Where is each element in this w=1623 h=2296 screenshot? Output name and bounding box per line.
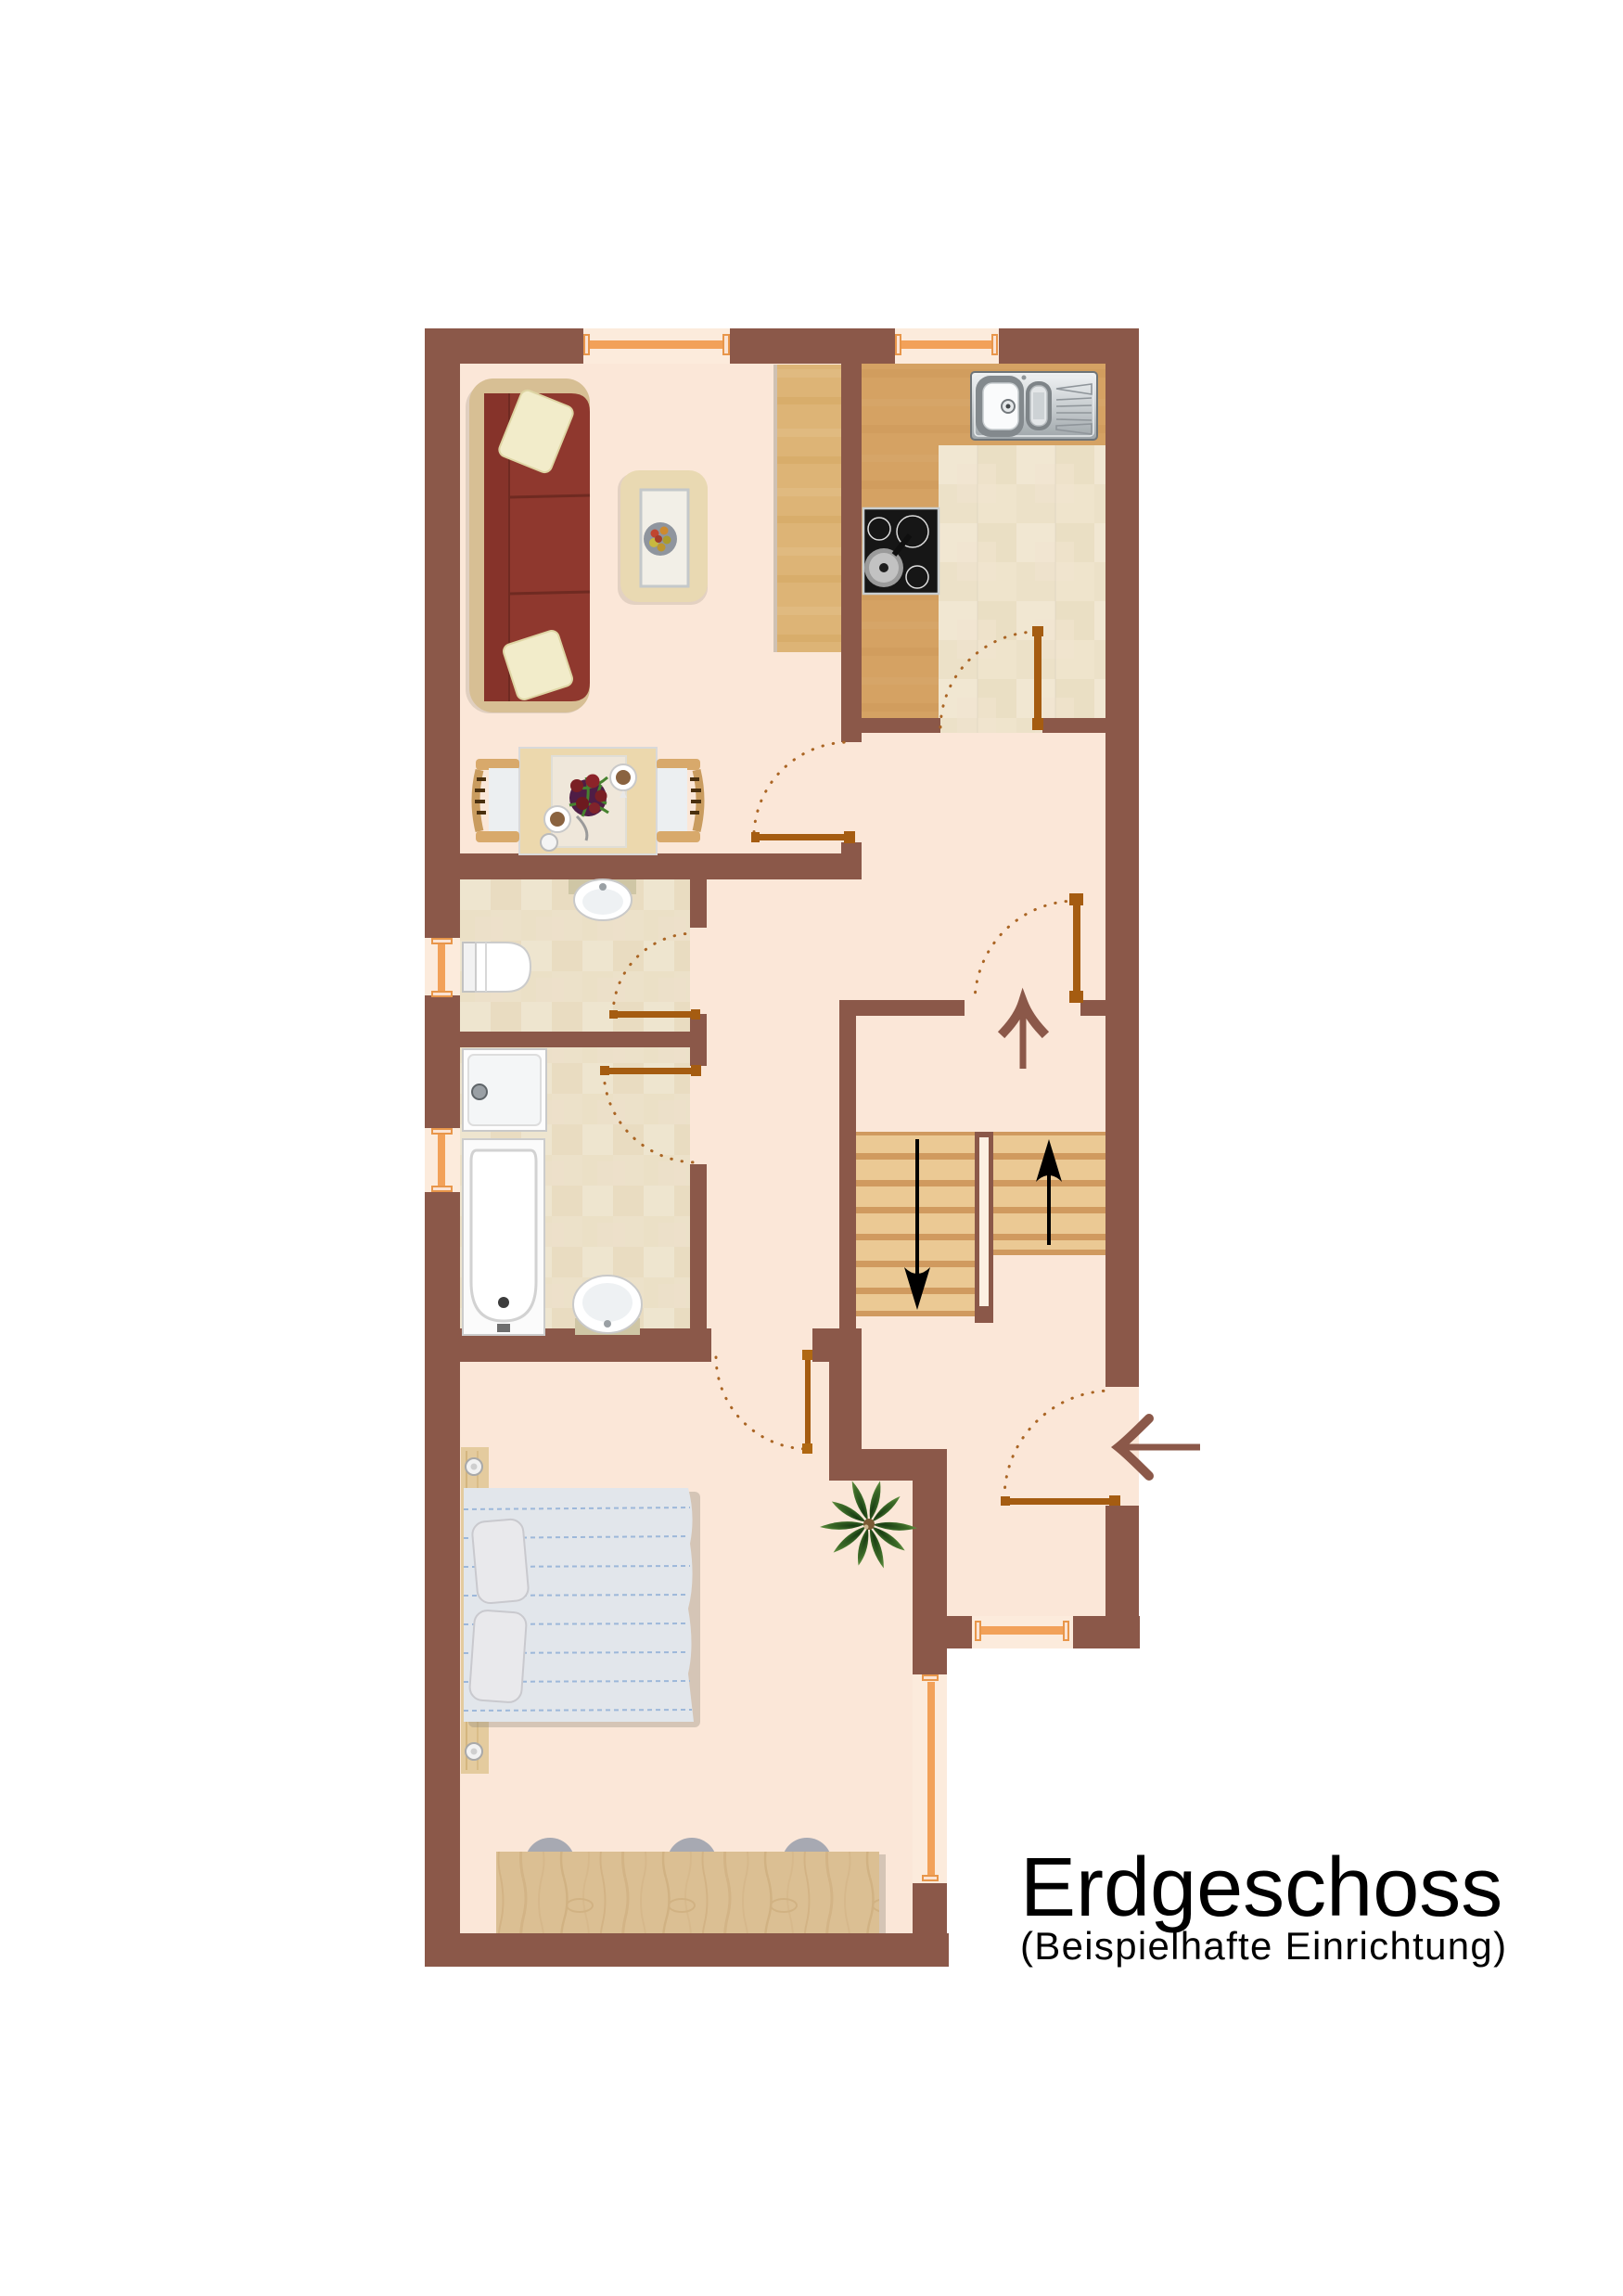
svg-text:(Beispielhafte Einrichtung): (Beispielhafte Einrichtung)	[1020, 1924, 1507, 1968]
svg-text:Erdgeschoss: Erdgeschoss	[1020, 1841, 1502, 1934]
